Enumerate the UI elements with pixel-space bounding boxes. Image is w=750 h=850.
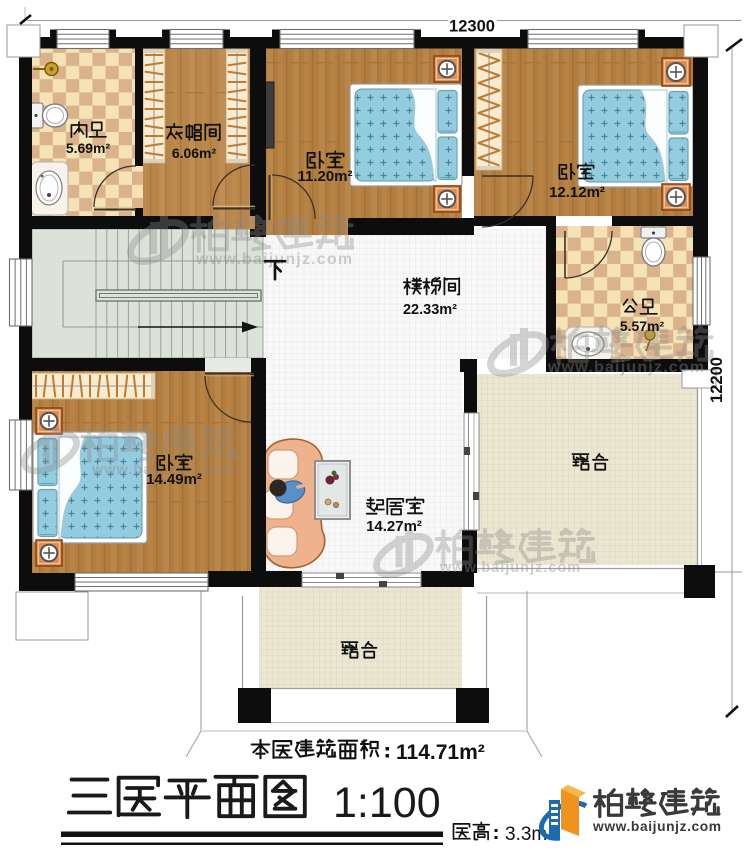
svg-text:5.69m²: 5.69m² bbox=[66, 140, 111, 156]
svg-text:1:100: 1:100 bbox=[333, 779, 441, 827]
svg-text:6.06m²: 6.06m² bbox=[172, 145, 217, 161]
svg-text:www.baijunjz.com: www.baijunjz.com bbox=[592, 819, 722, 834]
svg-text:www.baijunjz.com: www.baijunjz.com bbox=[439, 560, 581, 576]
svg-text:114.71m²: 114.71m² bbox=[396, 741, 485, 764]
svg-text:11.20m²: 11.20m² bbox=[297, 168, 352, 185]
svg-text:www.baijunjz.com: www.baijunjz.com bbox=[547, 359, 705, 376]
svg-text:14.27m²: 14.27m² bbox=[366, 518, 422, 535]
svg-text:5.57m²: 5.57m² bbox=[620, 318, 665, 334]
svg-text:12300: 12300 bbox=[449, 18, 495, 36]
svg-text:12200: 12200 bbox=[708, 357, 726, 403]
svg-text:22.33m²: 22.33m² bbox=[403, 302, 457, 318]
svg-text:12.12m²: 12.12m² bbox=[549, 184, 605, 201]
svg-text:14.49m²: 14.49m² bbox=[146, 471, 202, 488]
